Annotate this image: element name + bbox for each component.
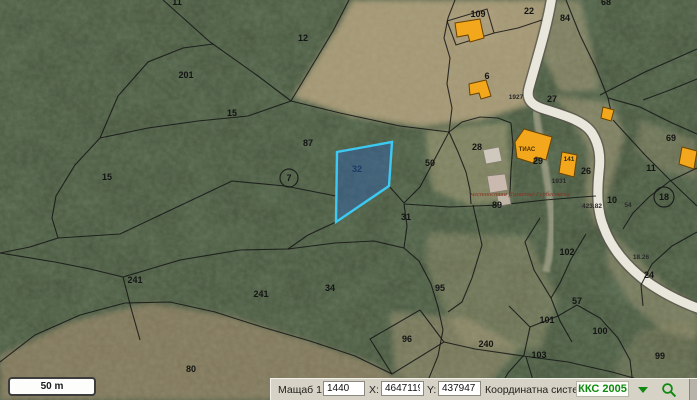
parcel-label: 102 bbox=[559, 247, 574, 257]
gis-application-window: 1168121092284201619272715875028ТИАС29141… bbox=[0, 0, 697, 400]
parcel-label: 28 bbox=[472, 142, 482, 152]
parcel-label: 27 bbox=[547, 94, 557, 104]
scale-input[interactable] bbox=[323, 381, 365, 396]
parcel-label: 18 bbox=[659, 192, 669, 202]
parcel-label: 6 bbox=[484, 71, 489, 81]
parcel-label: 29 bbox=[533, 156, 543, 166]
parcel-label: 69 bbox=[666, 133, 676, 143]
parcel-label: 96 bbox=[402, 334, 412, 344]
y-coordinate-input[interactable] bbox=[438, 381, 481, 396]
chevron-down-icon bbox=[638, 387, 648, 393]
parcel-label: 15 bbox=[102, 172, 112, 182]
parcel-label: 12 bbox=[298, 33, 308, 43]
parcel-label: 95 bbox=[435, 283, 445, 293]
crs-selected-value[interactable]: ККС 2005 bbox=[576, 381, 629, 397]
scale-label: Мащаб 1: bbox=[278, 384, 325, 396]
parcel-label: 18.26 bbox=[633, 254, 650, 261]
parcel-label: 50 bbox=[425, 158, 435, 168]
map-canvas[interactable]: 1168121092284201619272715875028ТИАС29141… bbox=[0, 0, 697, 400]
parcel-label: 100 bbox=[592, 326, 607, 336]
map-scale-bar: 50 m bbox=[8, 377, 96, 396]
parcel-label: 99 bbox=[655, 351, 665, 361]
parcel-label: 11 bbox=[172, 0, 182, 7]
parcel-label: 109 bbox=[470, 9, 485, 19]
x-coordinate-input[interactable] bbox=[381, 381, 424, 396]
parcel-label: 15 bbox=[227, 108, 237, 118]
status-bar-corner-grip bbox=[689, 379, 697, 400]
parcel-label: 241 bbox=[127, 275, 142, 285]
crs-value-text: ККС 2005 bbox=[578, 383, 627, 395]
parcel-label: 103 bbox=[531, 350, 546, 360]
parcel-label: 32 bbox=[352, 164, 362, 174]
locality-name-label: местността Димитър Гербесовски bbox=[469, 191, 570, 198]
search-icon bbox=[661, 382, 677, 398]
parcel-label: 423.82 bbox=[582, 203, 602, 210]
parcel-label: 240 bbox=[478, 339, 493, 349]
parcel-label: 141 bbox=[564, 156, 575, 163]
parcel-label: 7 bbox=[286, 173, 291, 183]
parcel-label: 1927 bbox=[509, 94, 524, 101]
parcel-label: 201 bbox=[178, 70, 193, 80]
parcel-label: 11 bbox=[646, 163, 656, 173]
parcel-label: 26 bbox=[581, 166, 591, 176]
parcel-label: 31 bbox=[401, 212, 411, 222]
x-coordinate-label: X: bbox=[369, 384, 379, 396]
y-coordinate-label: Y: bbox=[427, 384, 436, 396]
parcel-label: 22 bbox=[524, 6, 534, 16]
parcel-label: 84 bbox=[560, 13, 570, 23]
parcel-label: 87 bbox=[303, 138, 313, 148]
parcel-label: 57 bbox=[572, 296, 582, 306]
parcel-label: 68 bbox=[601, 0, 611, 7]
crs-dropdown-button[interactable] bbox=[633, 383, 653, 397]
parcel-label: 80 bbox=[186, 364, 196, 374]
parcel-label: 89 bbox=[492, 200, 502, 210]
status-bar: Мащаб 1: X: Y: Координатна система: ККС … bbox=[270, 378, 697, 400]
house bbox=[483, 147, 502, 164]
scale-bar-text: 50 m bbox=[41, 381, 64, 392]
parcel-label: ТИАС bbox=[519, 147, 536, 153]
parcel-label: 101 bbox=[539, 315, 554, 325]
search-button[interactable] bbox=[657, 380, 681, 400]
parcel-label: 54 bbox=[624, 202, 632, 209]
parcel-label: 241 bbox=[253, 289, 268, 299]
parcel-label: 24 bbox=[644, 270, 654, 280]
parcel-label: 34 bbox=[325, 283, 335, 293]
parcel-label: 10 bbox=[607, 195, 617, 205]
parcel-label: 1931 bbox=[552, 178, 567, 185]
building bbox=[601, 107, 614, 121]
